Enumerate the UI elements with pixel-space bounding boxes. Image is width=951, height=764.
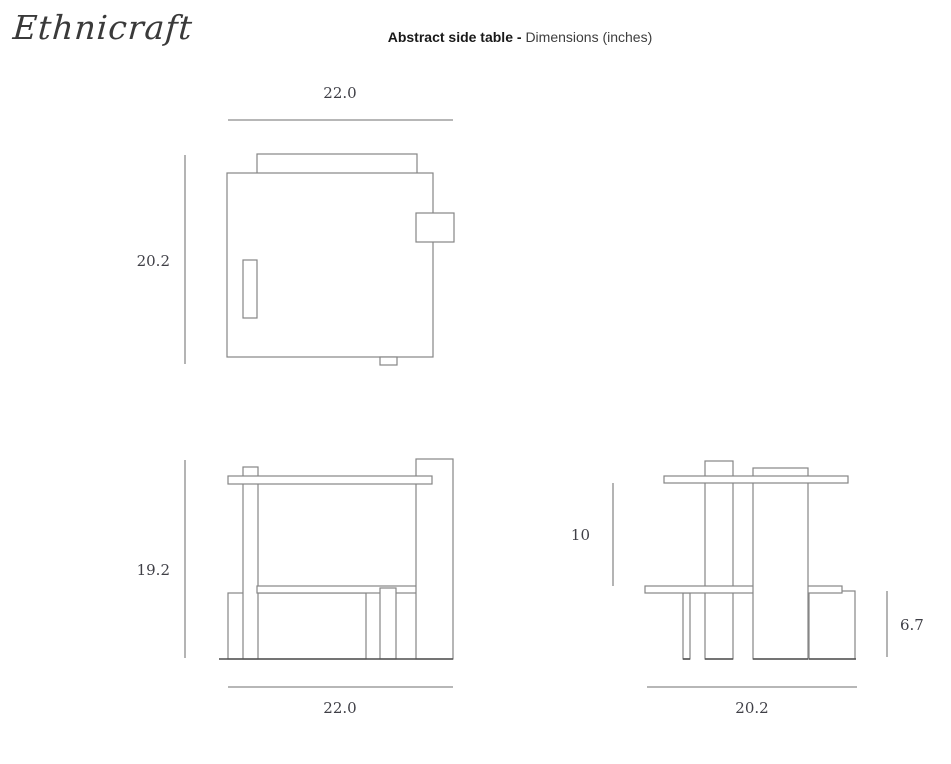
top-view-tabletop-edge [257,154,417,174]
front-view-tabletop [228,476,432,484]
side-view-thin-leg [683,593,690,659]
top-view-drawing [227,154,454,365]
spec-sheet: Ethnicraft Abstract side table - Dimensi… [0,0,951,764]
side-view-drawing [645,461,855,659]
top-view-side-box [416,213,454,242]
front-view-height-dim-label: 19.2 [108,561,170,579]
front-view-left-leg [243,467,258,659]
top-view-body [227,173,433,357]
technical-drawing [0,0,951,764]
front-view-drawing [228,459,453,659]
side-view-storage-box [809,591,855,659]
side-view-upper-height-dim-label: 10 [530,526,590,544]
side-view-center-panel [753,468,808,659]
top-view-leg-slot [243,260,257,318]
side-view-depth-dim-label: 20.2 [712,699,792,717]
top-view-depth-dim-label: 20.2 [108,252,170,270]
side-view-front-leg [705,461,733,659]
top-view-rear-leg-tab [380,357,397,365]
side-view-lower-shelf [645,586,842,593]
top-view-width-dim-label: 22.0 [300,84,380,102]
side-view-box-height-dim-label: 6.7 [900,616,950,634]
side-view-tabletop [664,476,848,483]
front-view-width-dim-label: 22.0 [300,699,380,717]
front-view-side-panel [416,459,453,659]
front-view-right-leg [380,588,396,659]
